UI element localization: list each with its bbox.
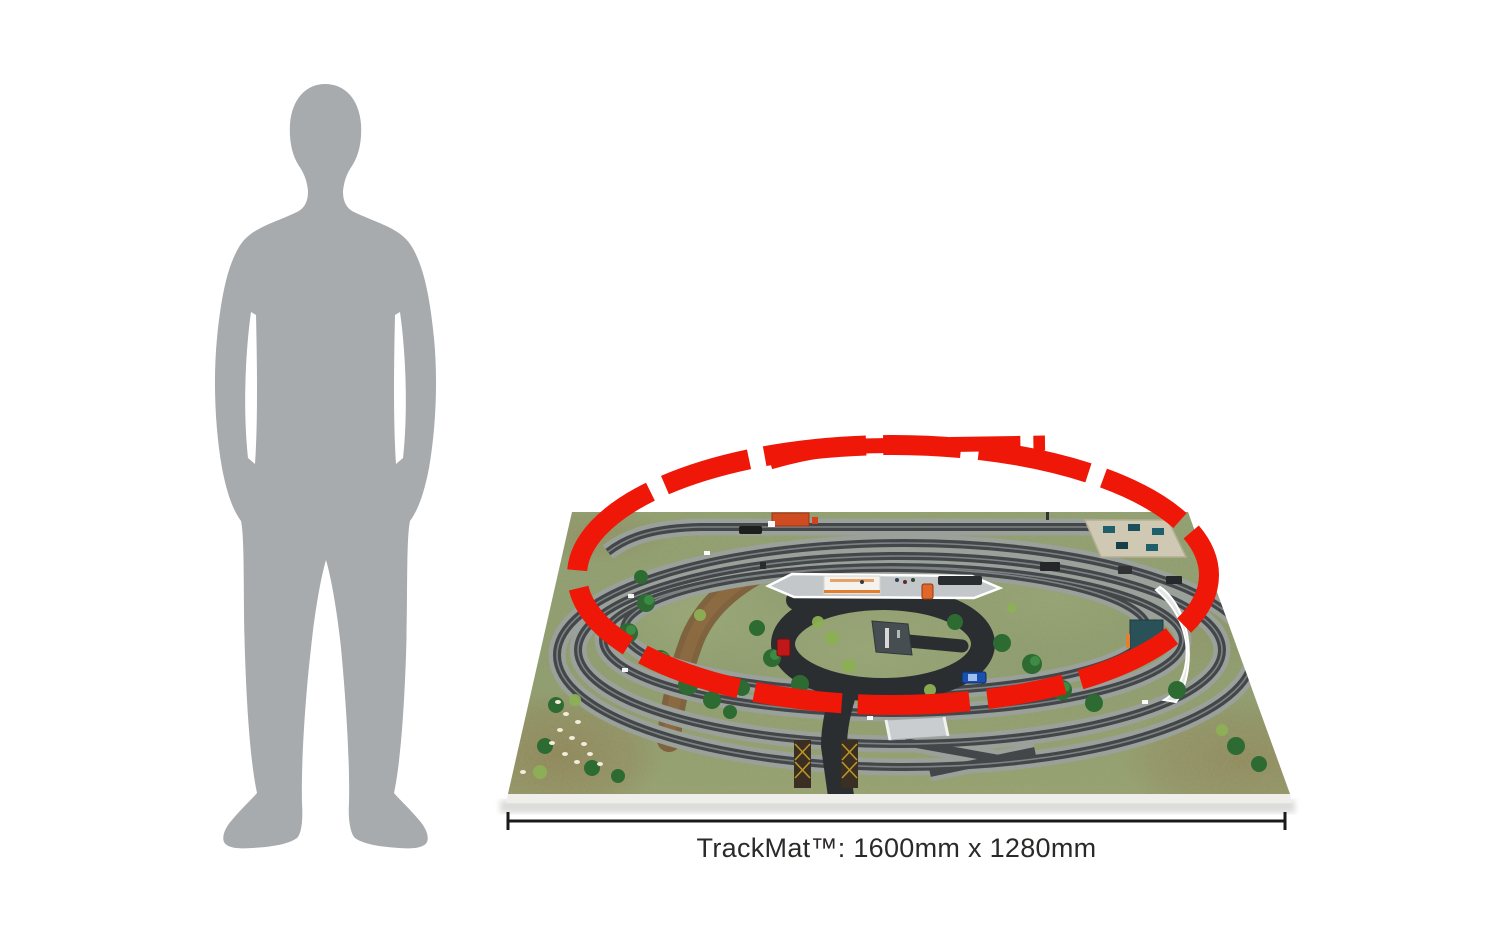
station-platform bbox=[768, 574, 1000, 598]
train-on-platform bbox=[938, 576, 982, 585]
black-locomotive bbox=[739, 526, 762, 534]
orange-van bbox=[922, 584, 933, 599]
product-scale-diagram: TrackMat™: 1600mm x 1280mm bbox=[0, 0, 1500, 938]
red-building bbox=[772, 513, 809, 526]
dimension-line bbox=[508, 812, 1285, 830]
central-building bbox=[872, 621, 912, 655]
human-figure-silhouette bbox=[215, 84, 436, 848]
mat-shadow bbox=[500, 794, 1295, 813]
dimension-label: TrackMat™: 1600mm x 1280mm bbox=[508, 833, 1285, 864]
red-car bbox=[777, 639, 790, 656]
trackmat-top-view bbox=[455, 443, 1360, 822]
warehouse bbox=[886, 717, 948, 740]
diagram-artwork bbox=[0, 0, 1500, 938]
